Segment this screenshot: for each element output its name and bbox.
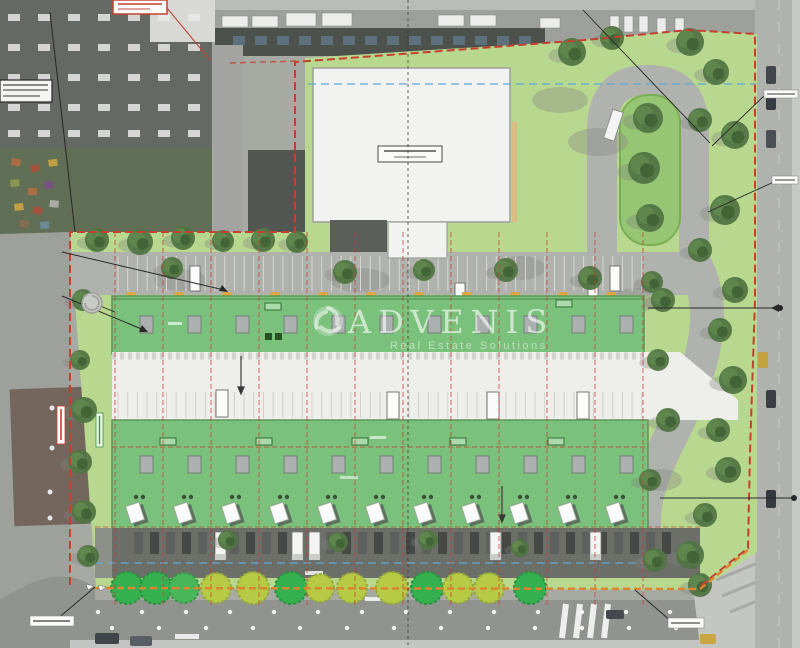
site-plan-image: ADVENIS Real Estate Solutions	[0, 0, 800, 648]
site-plan-svg: ADVENIS Real Estate Solutions	[0, 0, 800, 648]
